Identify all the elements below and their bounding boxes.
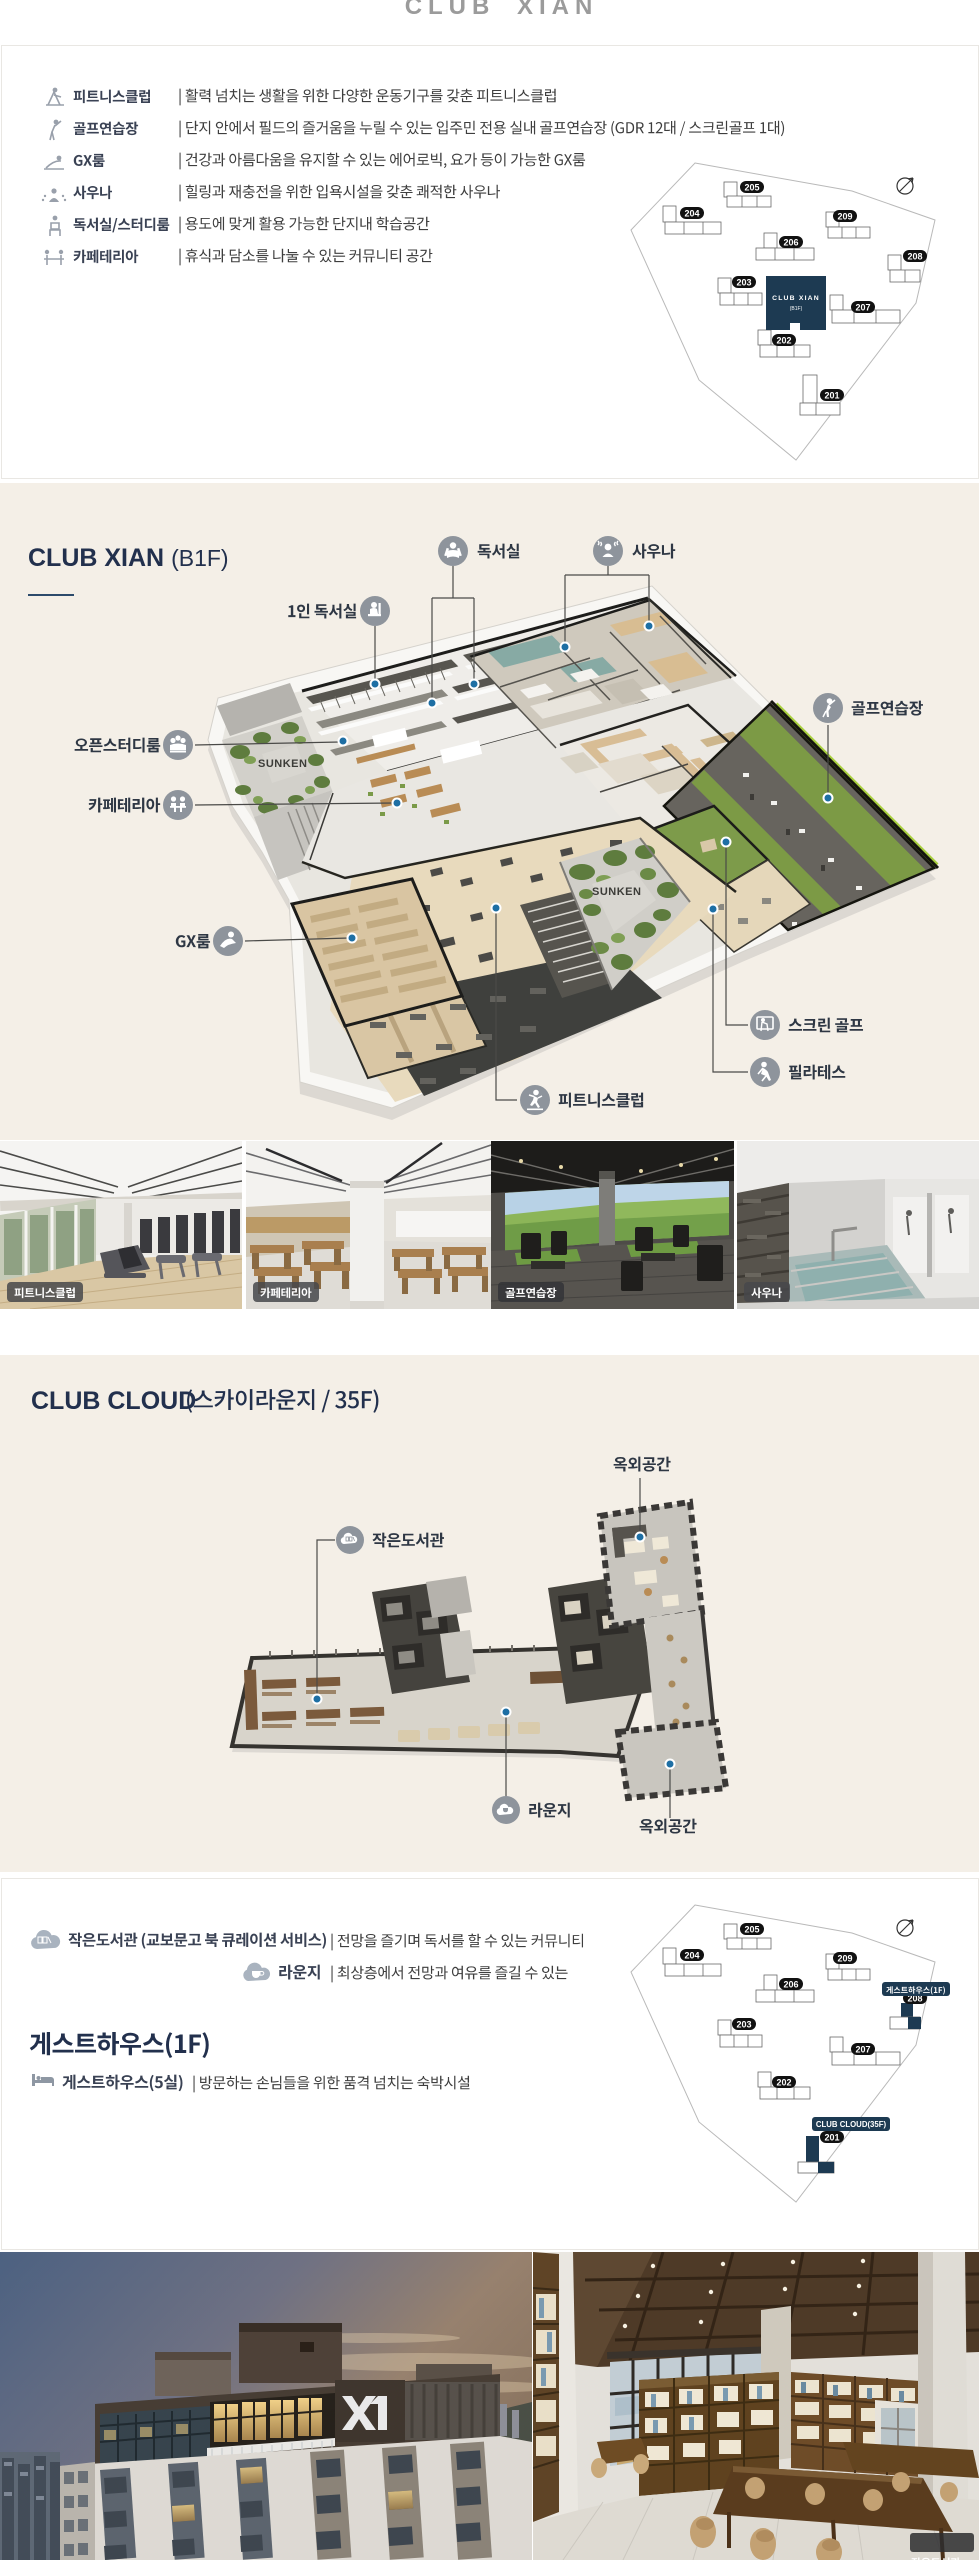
svg-text:202: 202: [776, 336, 791, 346]
svg-text:SUNKEN: SUNKEN: [592, 886, 641, 898]
svg-text:206: 206: [783, 238, 798, 248]
svg-text:209: 209: [837, 1954, 852, 1964]
svg-text:CLUB CLOUD(35F): CLUB CLOUD(35F): [816, 2120, 887, 2129]
svg-text:(B1F): (B1F): [790, 306, 803, 312]
svg-text:204: 204: [684, 209, 699, 219]
svg-text:206: 206: [783, 1980, 798, 1990]
svg-text:SUNKEN: SUNKEN: [258, 758, 307, 770]
svg-text:202: 202: [776, 2078, 791, 2088]
svg-text:201: 201: [824, 2133, 839, 2143]
svg-text:201: 201: [824, 391, 839, 401]
svg-text:205: 205: [744, 183, 759, 193]
svg-text:203: 203: [736, 2020, 751, 2030]
svg-text:203: 203: [736, 278, 751, 288]
svg-text:208: 208: [907, 252, 922, 262]
svg-text:CLUB XIAN: CLUB XIAN: [772, 295, 820, 302]
svg-text:207: 207: [855, 2045, 870, 2055]
svg-text:205: 205: [744, 1925, 759, 1935]
svg-text:207: 207: [855, 303, 870, 313]
svg-text:209: 209: [837, 212, 852, 222]
svg-text:204: 204: [684, 1951, 699, 1961]
